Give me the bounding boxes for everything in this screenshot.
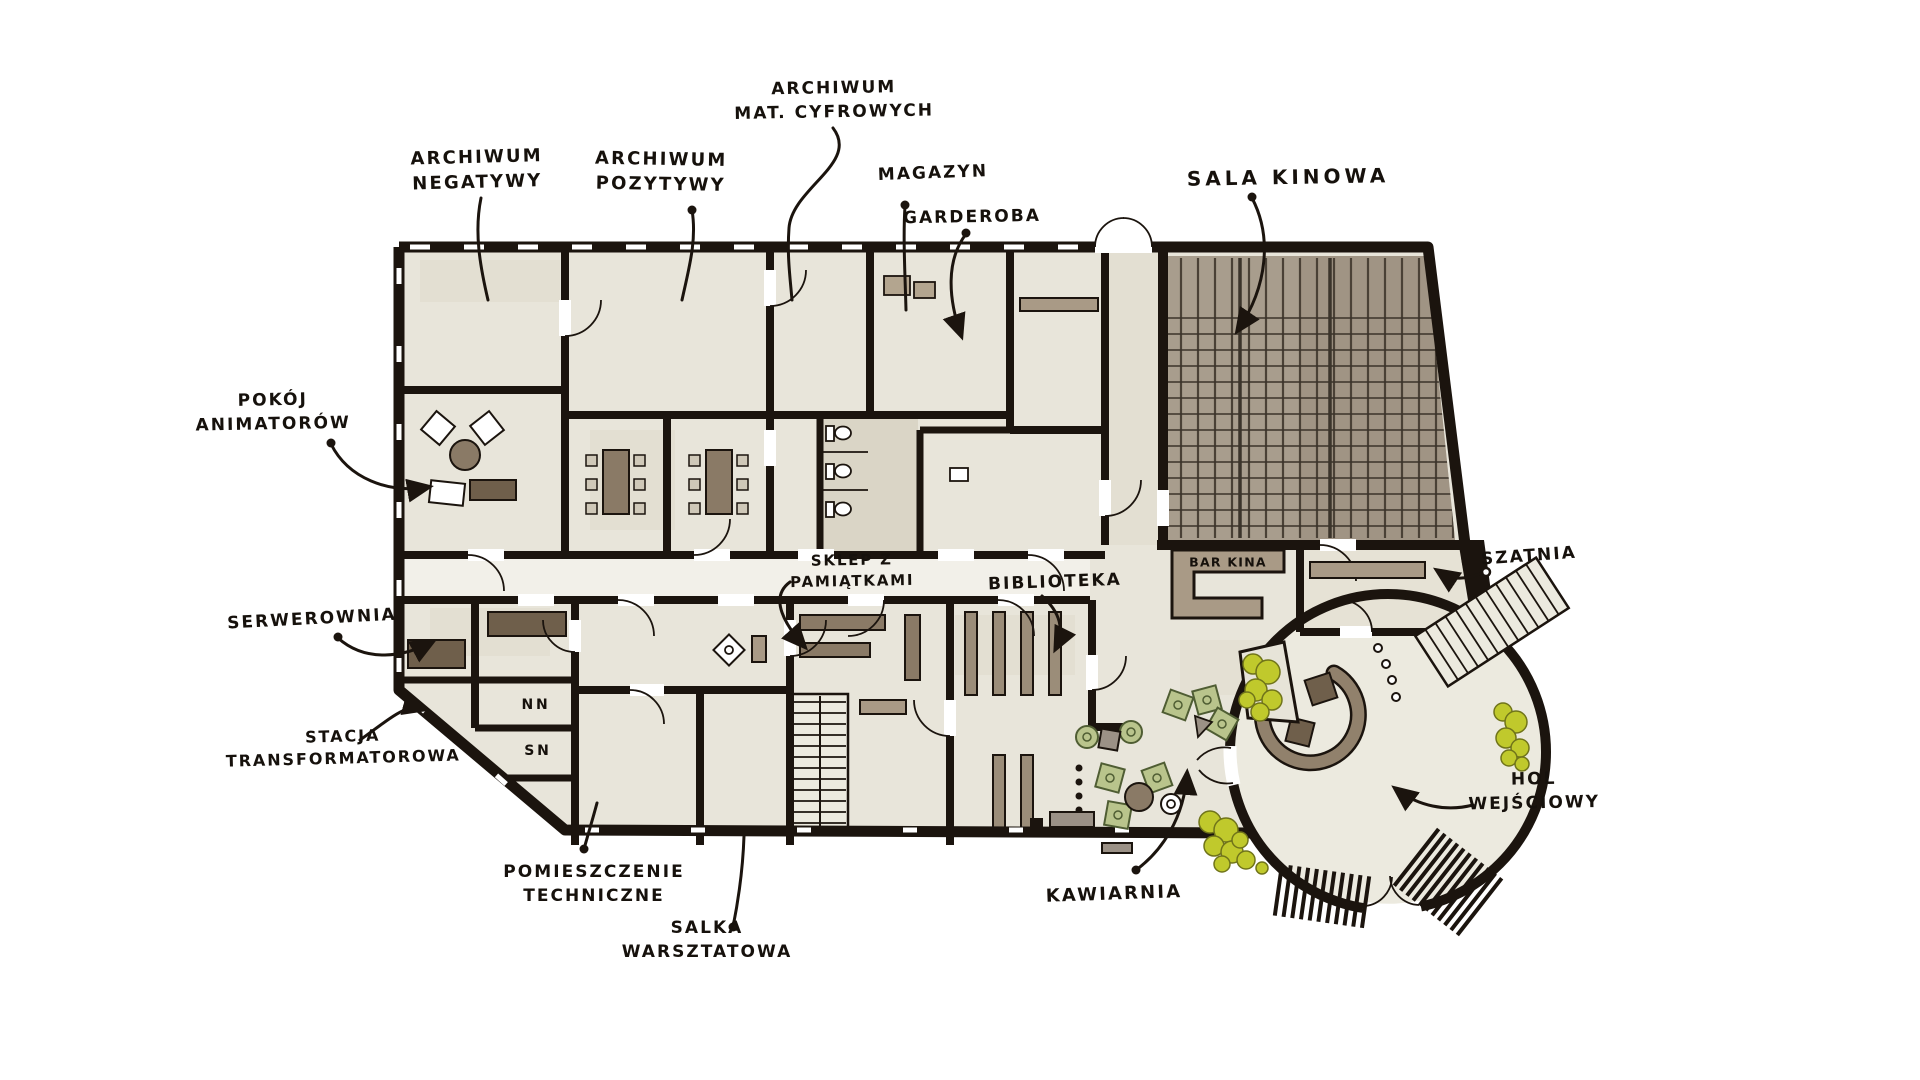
wardrobe-rail [1020,298,1098,311]
shop-stairs [792,694,848,834]
label-pomieszczenie-techniczne: POMIESZCZENIE TECHNICZNE [503,861,684,909]
floor-plan-sketch: ARCHIWUM NEGATYWY ARCHIWUM POZYTYWY ARCH… [0,0,1920,1080]
label-stacja-transformatorowa: STACJA TRANSFORMATOROWA [225,723,461,774]
label-nn: NN [521,696,550,716]
label-hol-wejsciowy: HOL WEJŚCIOWY [1468,767,1600,817]
label-salka-warsztatowa: SALKA WARSZTATOWA [622,917,793,965]
label-pokoj-animatorow: POKÓJ ANIMATORÓW [195,388,351,438]
label-archiwum-mat-cyfrowych: ARCHIWUM MAT. CYFROWYCH [734,75,935,126]
label-archiwum-negatywy: ARCHIWUM NEGATYWY [410,143,544,197]
label-bar-kina: BAR KINA [1189,553,1267,571]
label-sn: SN [524,742,551,762]
cinema-hall [1163,256,1455,540]
label-archiwum-pozytywy: ARCHIWUM POZYTYWY [594,146,727,199]
label-magazyn: MAGAZYN [877,160,988,188]
cloakroom-counter [1310,562,1425,578]
label-garderoba: GARDEROBA [903,205,1041,231]
label-sklep-z-pamiatkami: SKLEP Z PAMIĄTKAMI [790,549,915,593]
label-kawiarnia: KAWIARNIA [1045,879,1182,909]
label-biblioteka: BIBLIOTEKA [988,569,1123,597]
leader-salka-warsztatowa [733,836,744,927]
label-sala-kinowa: SALA KINOWA [1187,161,1390,193]
